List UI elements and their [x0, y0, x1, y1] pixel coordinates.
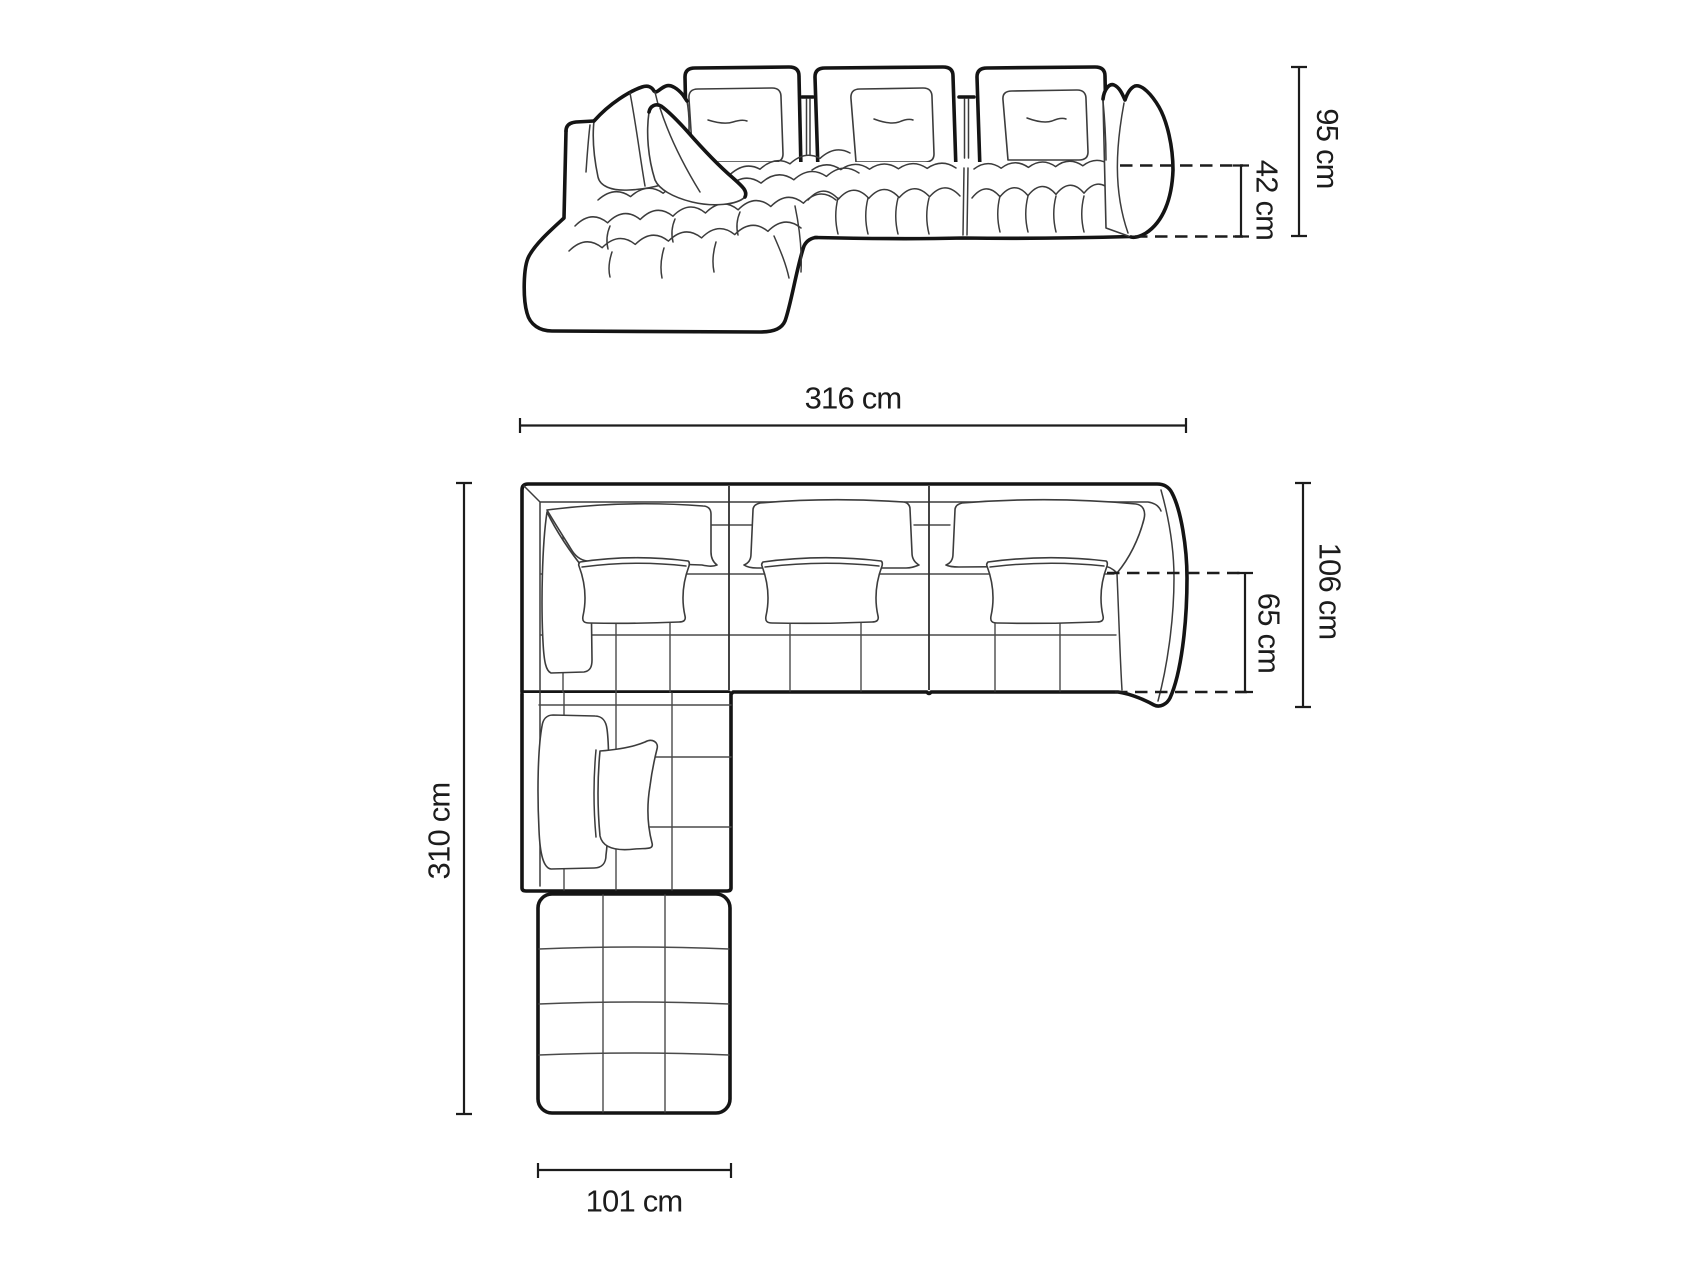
- svg-text:95 cm: 95 cm: [1310, 108, 1345, 188]
- svg-text:106 cm: 106 cm: [1313, 543, 1348, 640]
- svg-text:316 cm: 316 cm: [805, 381, 902, 416]
- svg-text:101 cm: 101 cm: [586, 1184, 683, 1219]
- svg-text:42 cm: 42 cm: [1250, 160, 1285, 240]
- svg-text:65 cm: 65 cm: [1252, 593, 1287, 673]
- svg-text:310 cm: 310 cm: [422, 783, 457, 880]
